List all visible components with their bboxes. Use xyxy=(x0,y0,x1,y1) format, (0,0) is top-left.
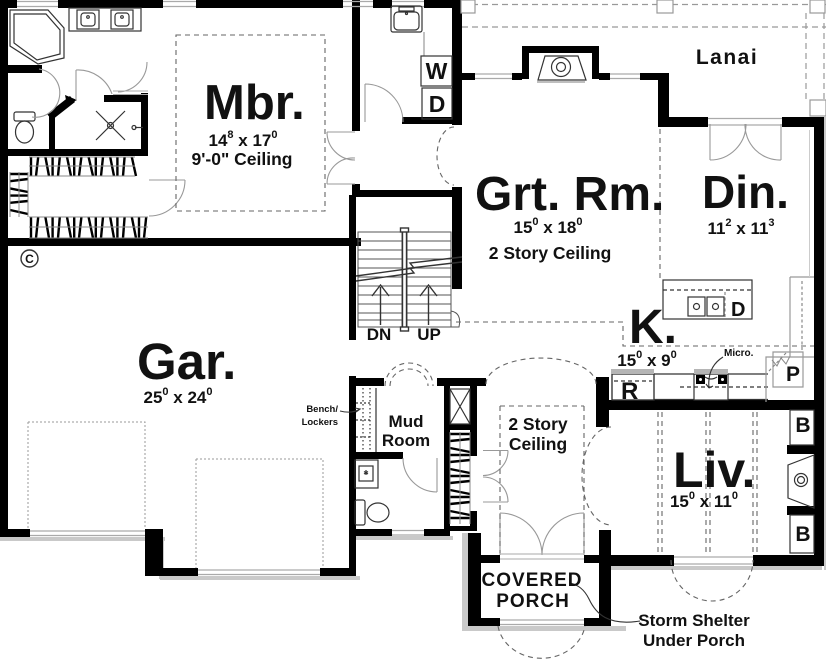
svg-text:C: C xyxy=(25,252,34,266)
svg-text:P: P xyxy=(786,363,800,386)
svg-text:2 Story Ceiling: 2 Story Ceiling xyxy=(489,243,612,263)
svg-text:Mud: Mud xyxy=(389,412,424,431)
svg-text:Storm Shelter: Storm Shelter xyxy=(638,611,750,630)
svg-text:Ceiling: Ceiling xyxy=(509,434,567,454)
svg-text:PORCH: PORCH xyxy=(496,591,570,612)
svg-text:Micro.: Micro. xyxy=(724,348,754,359)
svg-text:2 Story: 2 Story xyxy=(508,414,568,434)
svg-text:DN: DN xyxy=(367,325,392,344)
svg-text:Gar.: Gar. xyxy=(137,333,236,390)
svg-text:Grt. Rm.: Grt. Rm. xyxy=(475,168,664,221)
svg-text:112 x 113: 112 x 113 xyxy=(707,217,774,238)
svg-text:K.: K. xyxy=(629,301,677,354)
svg-text:Bench/: Bench/ xyxy=(306,404,338,415)
svg-text:Room: Room xyxy=(382,431,430,450)
svg-text:Lanai: Lanai xyxy=(696,46,758,69)
svg-text:150 x 180: 150 x 180 xyxy=(514,216,583,237)
svg-text:150 x 90: 150 x 90 xyxy=(617,349,677,370)
svg-text:UP: UP xyxy=(417,325,441,344)
svg-text:B: B xyxy=(795,523,810,546)
svg-text:D: D xyxy=(429,91,446,117)
svg-text:R: R xyxy=(621,378,638,405)
svg-text:148 x 170: 148 x 170 xyxy=(209,129,278,150)
svg-text:D: D xyxy=(731,299,745,321)
svg-text:9'-0" Ceiling: 9'-0" Ceiling xyxy=(192,149,293,169)
svg-text:Under Porch: Under Porch xyxy=(643,631,745,650)
svg-text:Din.: Din. xyxy=(702,166,789,218)
svg-text:W: W xyxy=(426,58,448,84)
svg-text:250 x 240: 250 x 240 xyxy=(144,386,213,407)
svg-text:COVERED: COVERED xyxy=(482,570,583,591)
svg-text:Liv.: Liv. xyxy=(673,442,755,498)
svg-text:Lockers: Lockers xyxy=(302,417,338,428)
svg-text:Mbr.: Mbr. xyxy=(204,76,305,130)
svg-text:150 x 110: 150 x 110 xyxy=(670,490,738,511)
svg-text:B: B xyxy=(795,414,810,437)
